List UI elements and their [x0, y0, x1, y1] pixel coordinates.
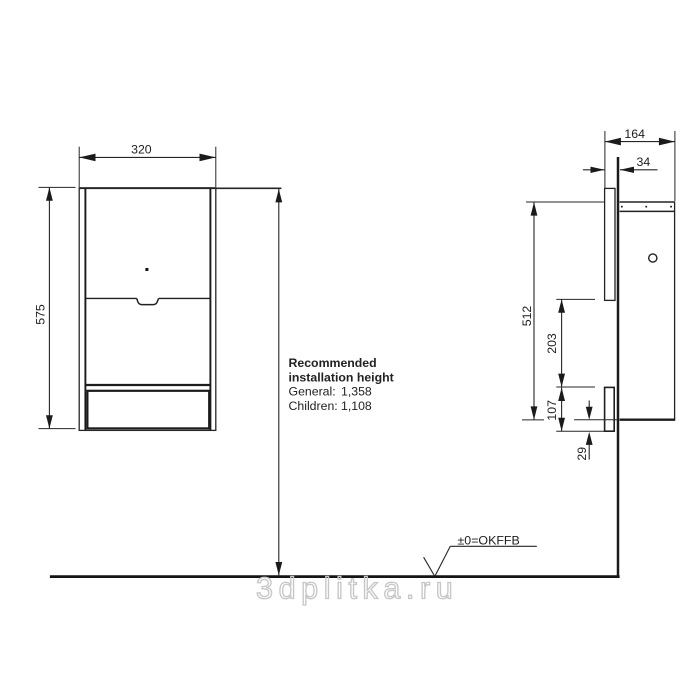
svg-text:203: 203	[545, 333, 559, 354]
svg-text:installation height: installation height	[289, 370, 394, 384]
svg-text:107: 107	[545, 400, 559, 421]
svg-text:1,108: 1,108	[341, 399, 372, 413]
svg-text:General:: General:	[289, 385, 336, 399]
svg-text:29: 29	[575, 447, 589, 461]
svg-text:575: 575	[33, 304, 47, 325]
svg-text:512: 512	[520, 306, 534, 327]
svg-text:Recommended: Recommended	[289, 356, 377, 370]
svg-text:164: 164	[624, 127, 645, 141]
svg-text:1,358: 1,358	[341, 385, 372, 399]
svg-text:34: 34	[637, 155, 651, 169]
svg-text:Children:: Children:	[289, 399, 338, 413]
svg-text:320: 320	[131, 142, 152, 156]
svg-text:±0=OKFFB: ±0=OKFFB	[458, 533, 520, 547]
svg-text:3dplitka.ru: 3dplitka.ru	[256, 572, 458, 606]
